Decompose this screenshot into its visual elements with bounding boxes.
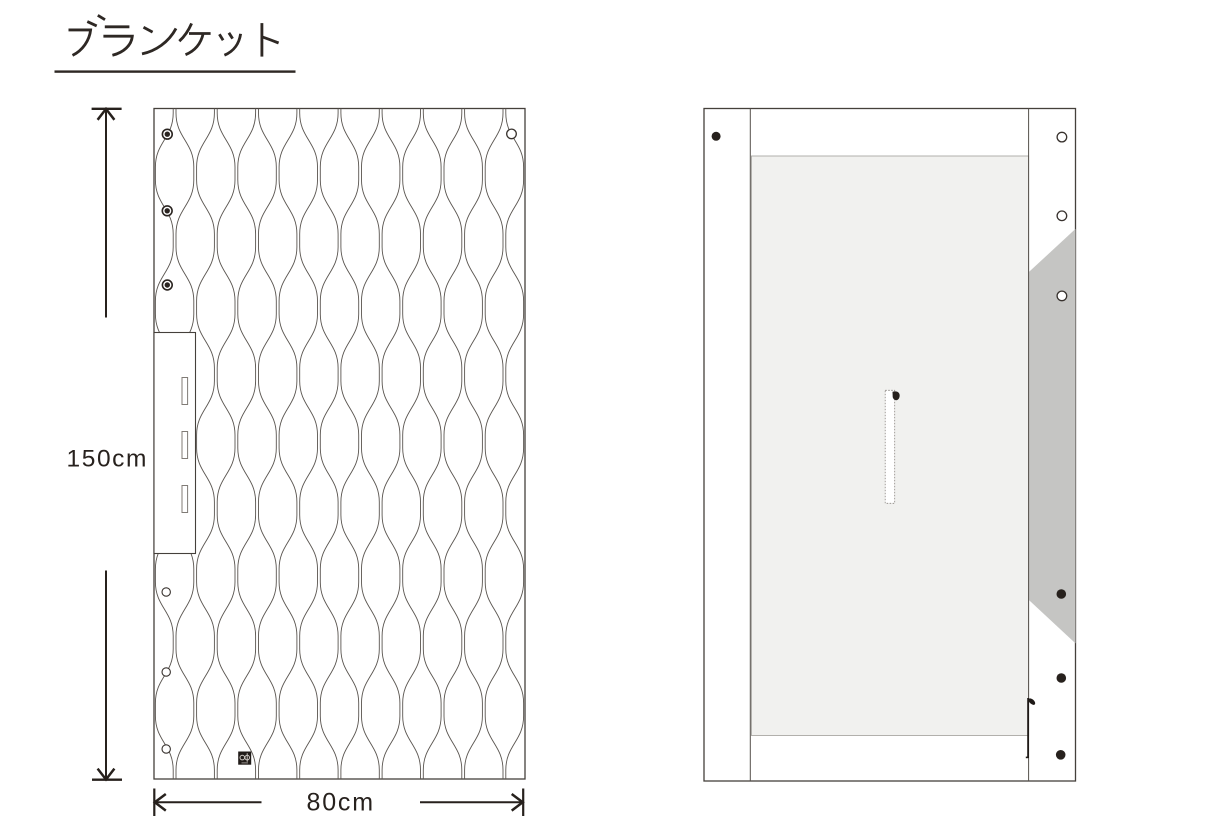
svg-text:80cm: 80cm	[307, 789, 375, 817]
svg-text:150cm: 150cm	[67, 446, 149, 473]
